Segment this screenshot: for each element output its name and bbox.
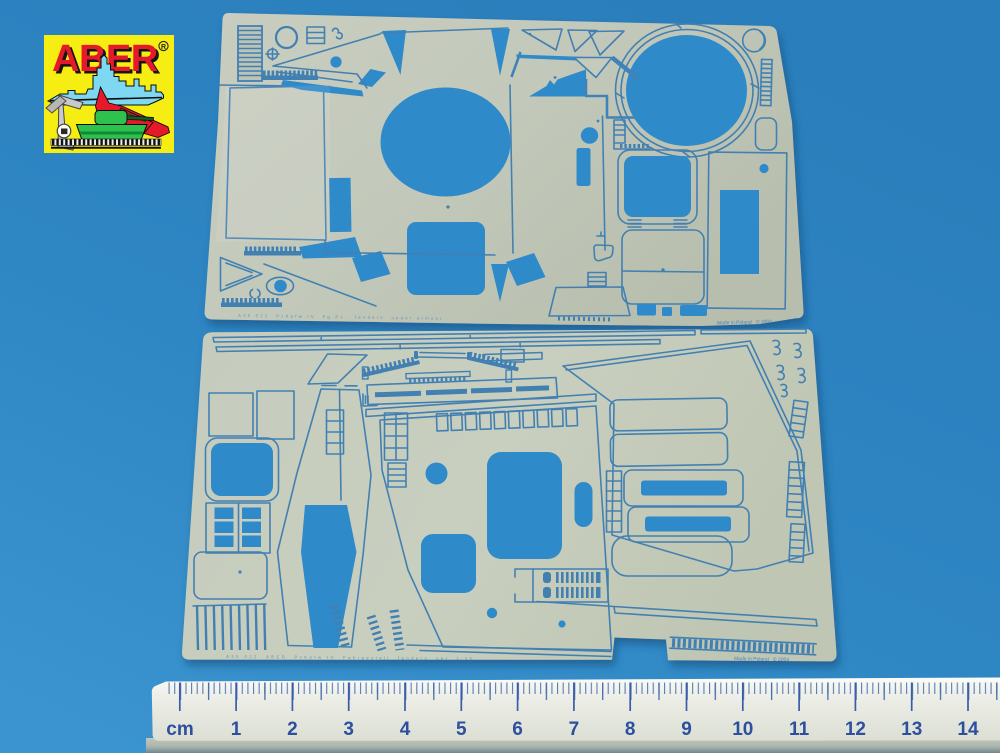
svg-text:5: 5 [456,719,467,740]
svg-text:11: 11 [789,719,810,740]
svg-text:Made in Poland © 2004: Made in Poland © 2004 [717,318,772,326]
svg-text:7: 7 [569,719,580,740]
svg-text:13: 13 [901,719,922,740]
svg-text:1: 1 [231,719,242,740]
svg-text:4: 4 [400,719,411,740]
svg-text:8: 8 [625,719,636,740]
svg-text:9: 9 [681,719,692,740]
svg-text:10: 10 [732,719,753,740]
svg-text:12: 12 [845,719,866,740]
svg-text:cm: cm [166,719,193,740]
svg-text:6: 6 [512,719,523,740]
svg-text:R: R [161,44,166,51]
svg-text:3: 3 [343,719,354,740]
svg-text:2: 2 [287,719,298,740]
svg-text:14: 14 [957,719,979,740]
svg-text:Made in Poland © 2004: Made in Poland © 2004 [734,655,789,663]
